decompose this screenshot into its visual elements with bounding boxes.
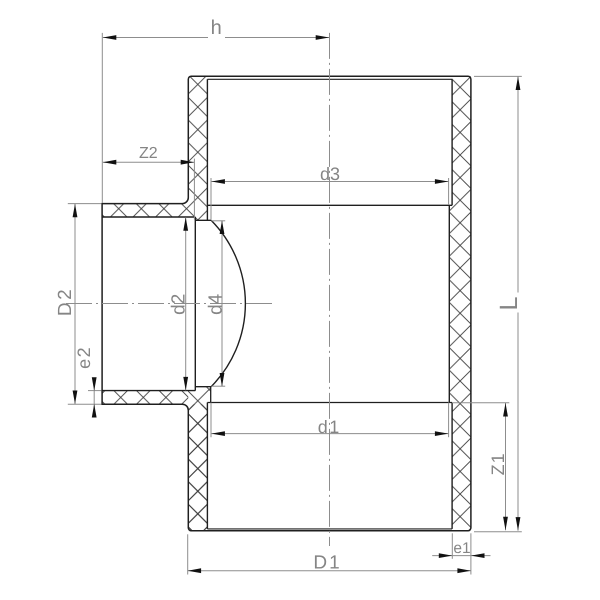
svg-text:e2: e2 [74,346,94,369]
svg-text:d2: d2 [169,294,190,315]
svg-text:d1: d1 [318,417,341,437]
svg-text:D1: D1 [313,553,341,574]
svg-text:d3: d3 [320,164,340,184]
svg-text:e1: e1 [453,540,470,557]
svg-text:h: h [211,17,222,39]
svg-text:D2: D2 [55,287,76,316]
svg-text:d4: d4 [205,293,226,315]
svg-text:L: L [495,296,523,310]
svg-text:Z1: Z1 [488,452,508,475]
svg-text:Z2: Z2 [139,145,158,162]
